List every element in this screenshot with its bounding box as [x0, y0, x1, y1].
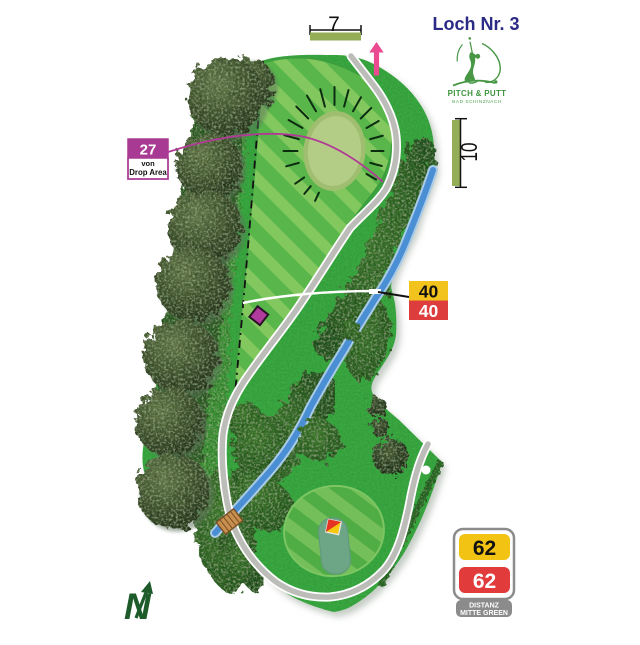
svg-text:BAD SCHINZNACH: BAD SCHINZNACH [452, 99, 502, 105]
svg-text:Loch Nr. 3: Loch Nr. 3 [432, 14, 519, 34]
svg-text:27: 27 [140, 142, 157, 159]
svg-text:40: 40 [419, 301, 439, 321]
svg-text:62: 62 [473, 537, 496, 560]
svg-text:von: von [141, 159, 155, 168]
svg-text:DISTANZ: DISTANZ [469, 603, 500, 610]
svg-text:62: 62 [473, 570, 496, 593]
svg-text:10: 10 [456, 143, 482, 162]
svg-text:PITCH & PUTT: PITCH & PUTT [448, 89, 507, 98]
svg-text:Drop Area: Drop Area [129, 168, 167, 177]
svg-text:MITTE GREEN: MITTE GREEN [460, 610, 508, 617]
svg-text:40: 40 [419, 282, 439, 302]
